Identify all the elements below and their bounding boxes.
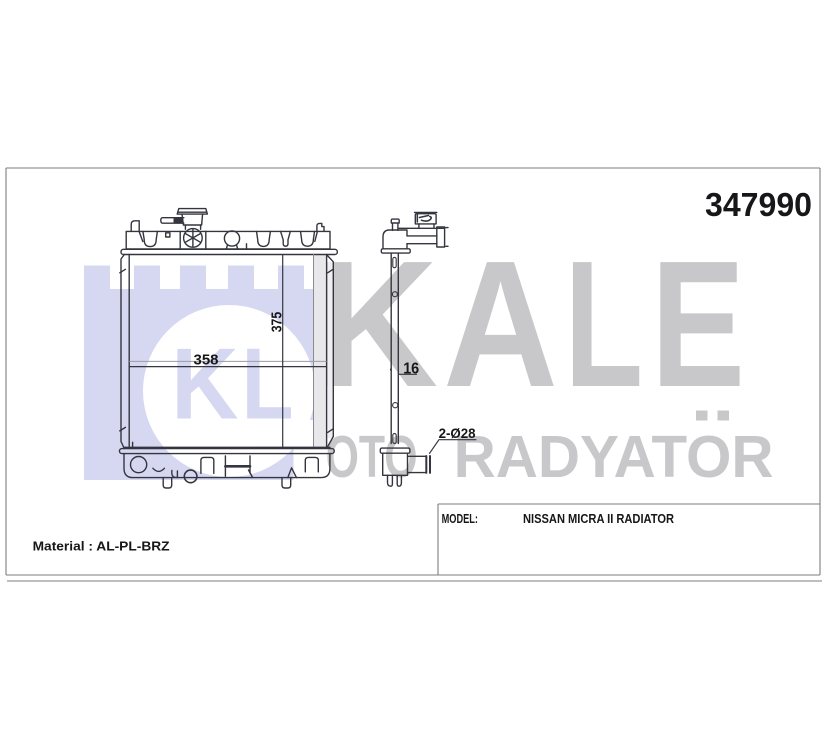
svg-text:375: 375 [269,312,285,333]
svg-text:RADYATOR: RADYATOR [454,424,774,490]
svg-text:347990: 347990 [705,186,812,223]
svg-text:NISSAN MICRA II RADIATOR: NISSAN MICRA II RADIATOR [523,511,675,526]
svg-text:L: L [242,326,294,440]
svg-text:K: K [171,327,238,440]
svg-text:E: E [651,224,745,425]
svg-text:2-Ø28: 2-Ø28 [439,426,476,441]
svg-text:A: A [443,224,558,425]
svg-text:Material : AL-PL-BRZ: Material : AL-PL-BRZ [33,539,170,554]
svg-text:16: 16 [403,360,419,377]
svg-text:L: L [564,224,643,425]
svg-text:358: 358 [194,351,219,368]
svg-text:MODEL:: MODEL: [442,511,478,526]
svg-text:OTO: OTO [326,424,418,490]
